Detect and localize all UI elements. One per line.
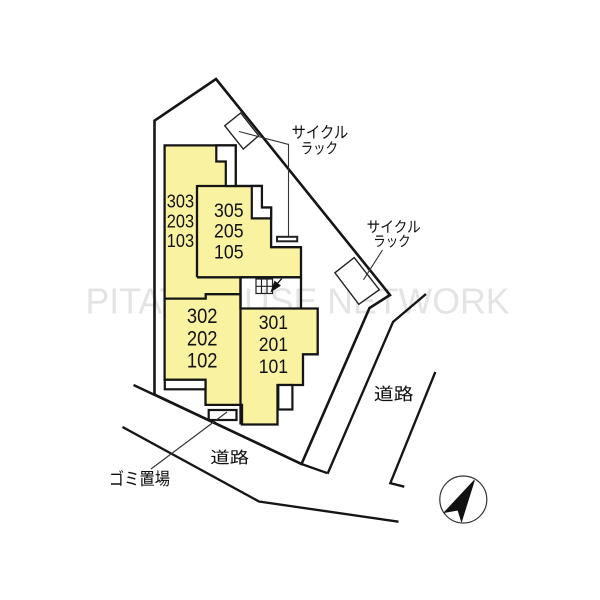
svg-text:205: 205 (214, 221, 244, 243)
svg-text:303: 303 (167, 192, 194, 212)
svg-text:301: 301 (259, 312, 288, 334)
svg-text:105: 105 (214, 241, 244, 263)
svg-text:203: 203 (167, 212, 194, 232)
svg-text:101: 101 (259, 356, 288, 378)
svg-text:302: 302 (187, 305, 218, 328)
svg-text:102: 102 (187, 350, 218, 373)
svg-text:305: 305 (214, 200, 244, 222)
svg-text:202: 202 (187, 328, 218, 351)
svg-text:201: 201 (259, 334, 288, 356)
svg-text:103: 103 (167, 231, 194, 251)
